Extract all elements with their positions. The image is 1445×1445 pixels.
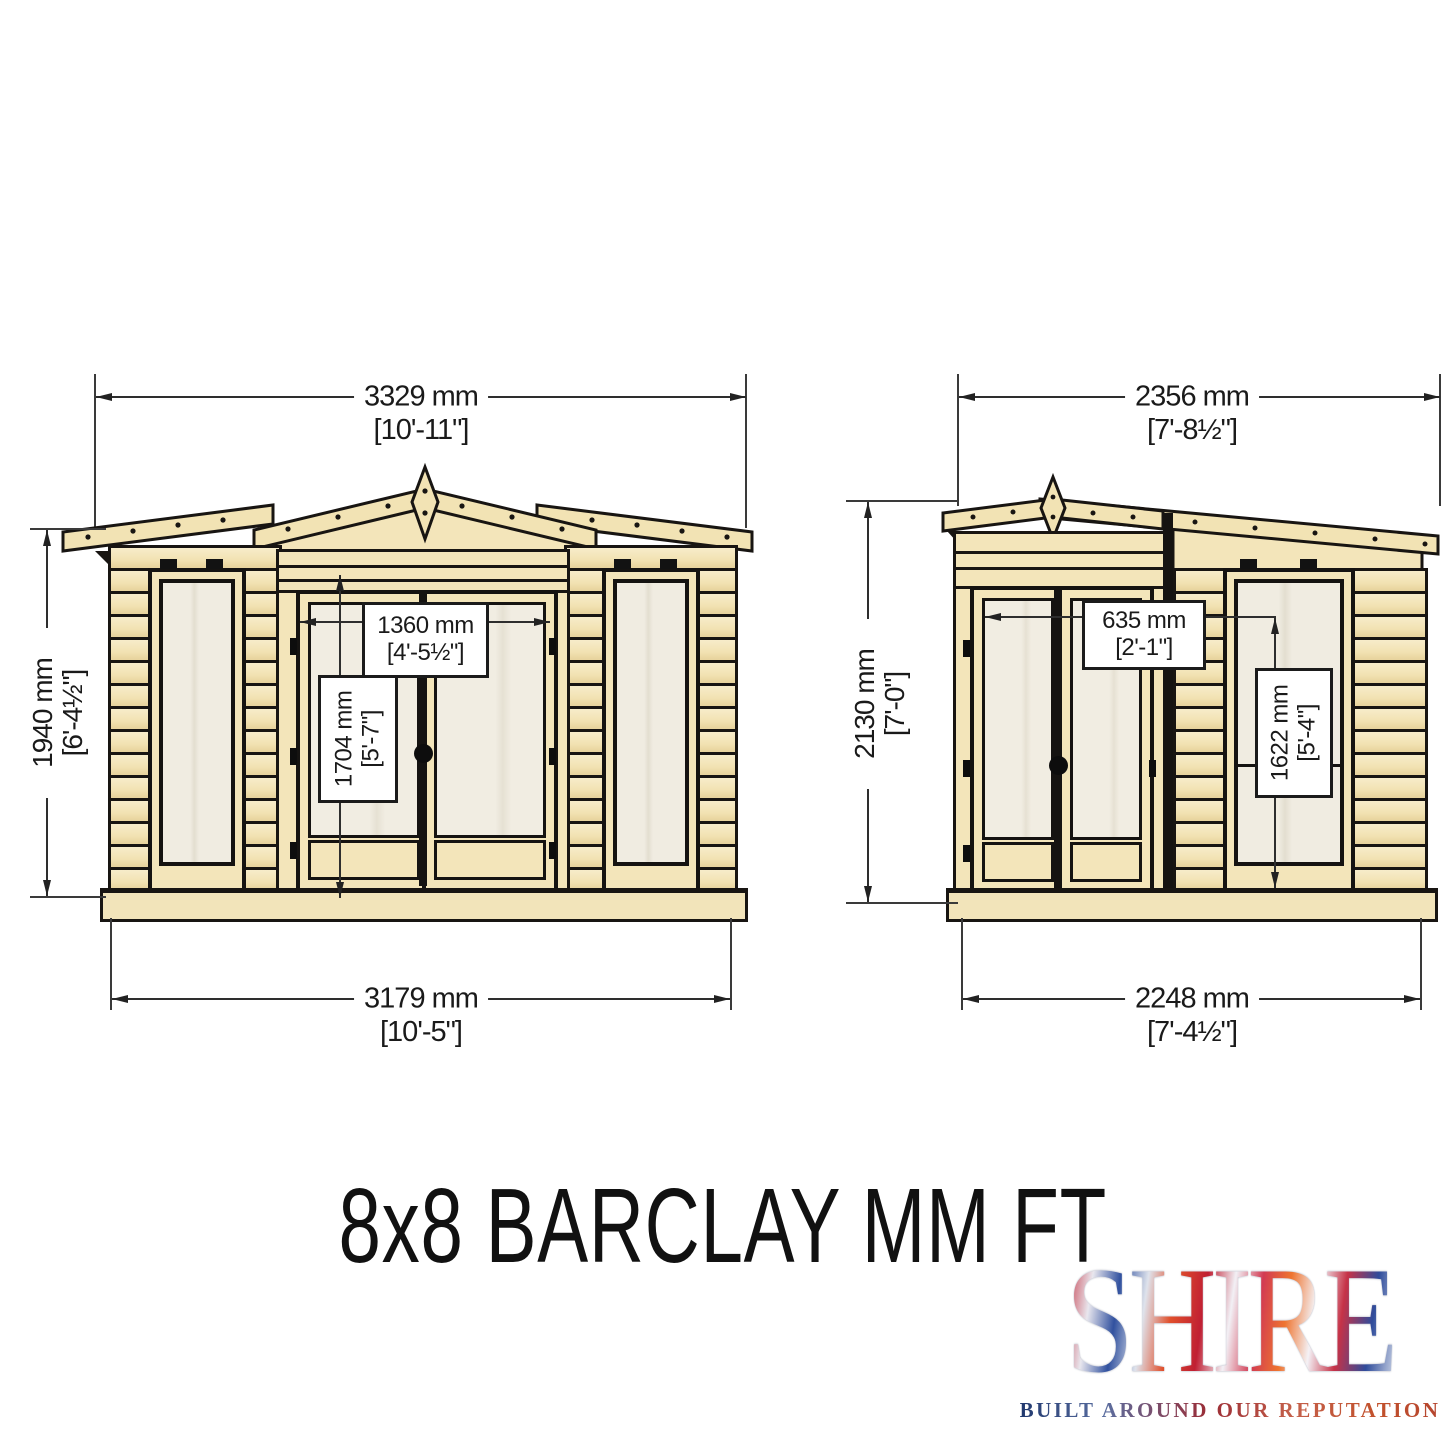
hinge-icon [963,845,970,862]
door-kick-panel [982,842,1054,882]
front-overall-height-mm: 1940 mm [28,628,58,798]
side-overall-width-ft: [7'-8½"] [1141,414,1243,447]
front-overall-height-ft: [6'-4½"] [58,628,88,798]
side-overall-height-ft: [7'-0"] [880,619,910,789]
arrowhead-icon [336,575,344,591]
front-overall-width-mm: 3329 mm [354,381,488,414]
arrowhead-icon [963,995,979,1003]
front-door-width-mm: 1360 mm [377,613,474,640]
window-clip-icon [660,559,677,569]
hinge-icon [549,842,556,859]
side-door-left [970,586,1066,896]
front-overall-width-ft: [10'-11"] [368,414,475,447]
extension-line [846,500,958,502]
arrowhead-icon [1424,393,1440,401]
extension-line [846,902,958,904]
side-base [946,888,1438,922]
side-window-height-mm: 1622 mm [1267,685,1294,782]
window-clip-icon [614,559,631,569]
door-handle-icon [1049,756,1068,775]
door-kick-panel [434,840,546,880]
arrowhead-icon [714,995,730,1003]
hinge-icon [290,842,297,859]
front-overall-height-label: 1940 mm [6'-4½"] [28,628,90,798]
corner-post [1163,513,1173,888]
door-meeting-stile [1054,586,1062,888]
window-glass [159,579,235,866]
arrowhead-icon [1271,872,1279,888]
arrowhead-icon [864,502,872,518]
side-door-width-mm: 635 mm [1102,608,1186,635]
side-door-header [953,531,1169,592]
door-handle-icon [414,744,433,763]
extension-line [30,896,106,898]
hinge-icon [1149,760,1156,777]
arrowhead-icon [1271,618,1279,634]
arrowhead-icon [336,882,344,898]
brand-wordmark: SHIRE [1066,1244,1393,1396]
window-glass [613,579,689,866]
front-left-window [148,568,246,896]
side-overall-height-mm: 2130 mm [850,619,880,789]
door-kick-panel [308,840,420,880]
hinge-icon [290,748,297,765]
front-door-header [276,549,570,596]
window-clip-icon [206,559,223,569]
arrowhead-icon [43,880,51,896]
arrowhead-icon [1404,995,1420,1003]
extension-line [730,918,732,1010]
front-door-height-mm: 1704 mm [331,691,358,788]
hinge-icon [963,760,970,777]
front-base [100,888,748,922]
arrowhead-icon [96,393,112,401]
drawing-canvas: 3329 mm [10'-11"] [0,0,1445,1445]
arrowhead-icon [43,530,51,546]
window-clip-icon [1240,559,1257,569]
side-door-width-ft: [2'-1"] [1115,635,1173,662]
front-door-width-box: 1360 mm [4'-5½"] [362,602,489,678]
hinge-icon [549,638,556,655]
door-glazing [982,598,1054,840]
arrowhead-icon [864,886,872,902]
window-clip-icon [160,559,177,569]
side-overall-height-label: 2130 mm [7'-0"] [850,619,912,789]
side-overall-width-mm: 2356 mm [1125,381,1259,414]
front-base-width-ft: [10'-5"] [374,1016,468,1049]
side-window-height-ft: [5'-4"] [1294,685,1321,782]
finial-icon [1041,477,1065,539]
hinge-icon [290,638,297,655]
front-door-width-ft: [4'-5½"] [387,640,464,667]
side-base-width-ft: [7'-4½"] [1141,1016,1243,1049]
shire-logo: SHIRE BUILT AROUND OUR REPUTATION [1018,1244,1442,1423]
arrowhead-icon [300,618,316,626]
arrowhead-icon [959,393,975,401]
front-base-width-mm: 3179 mm [354,983,488,1016]
arrowhead-icon [112,995,128,1003]
side-window-height-box: 1622 mm [5'-4"] [1255,668,1333,798]
hinge-icon [549,748,556,765]
front-door-height-box: 1704 mm [5'-7"] [318,675,398,803]
front-right-window [602,568,700,896]
door-kick-panel [1070,842,1142,882]
arrowhead-icon [534,618,550,626]
extension-line [1420,918,1422,1010]
hinge-icon [963,640,970,657]
arrowhead-icon [985,613,1001,621]
front-door-height-ft: [5'-7"] [358,691,385,788]
side-door-width-box: 635 mm [2'-1"] [1082,600,1206,670]
window-clip-icon [1300,559,1317,569]
arrowhead-icon [730,393,746,401]
side-base-width-mm: 2248 mm [1125,983,1259,1016]
extension-line [30,528,106,530]
